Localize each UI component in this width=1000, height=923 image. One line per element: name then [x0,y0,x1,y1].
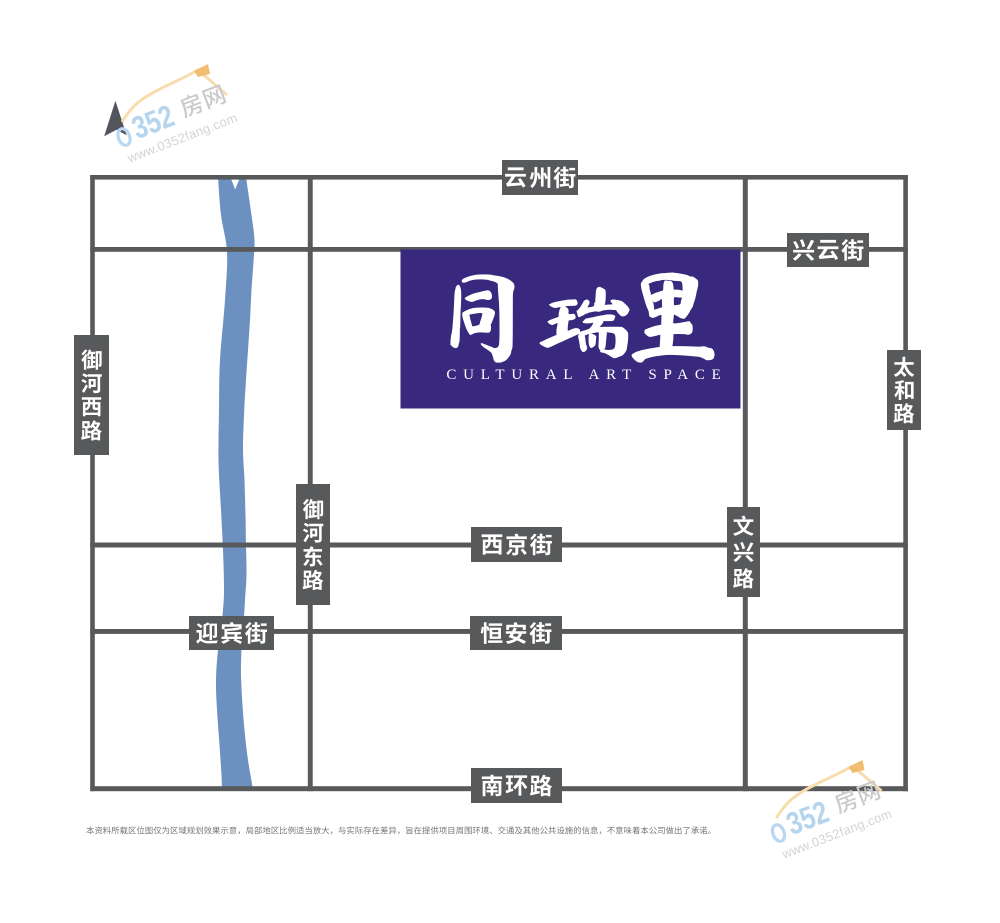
svg-text:CULTURAL ART SPACE: CULTURAL ART SPACE [446,367,727,383]
